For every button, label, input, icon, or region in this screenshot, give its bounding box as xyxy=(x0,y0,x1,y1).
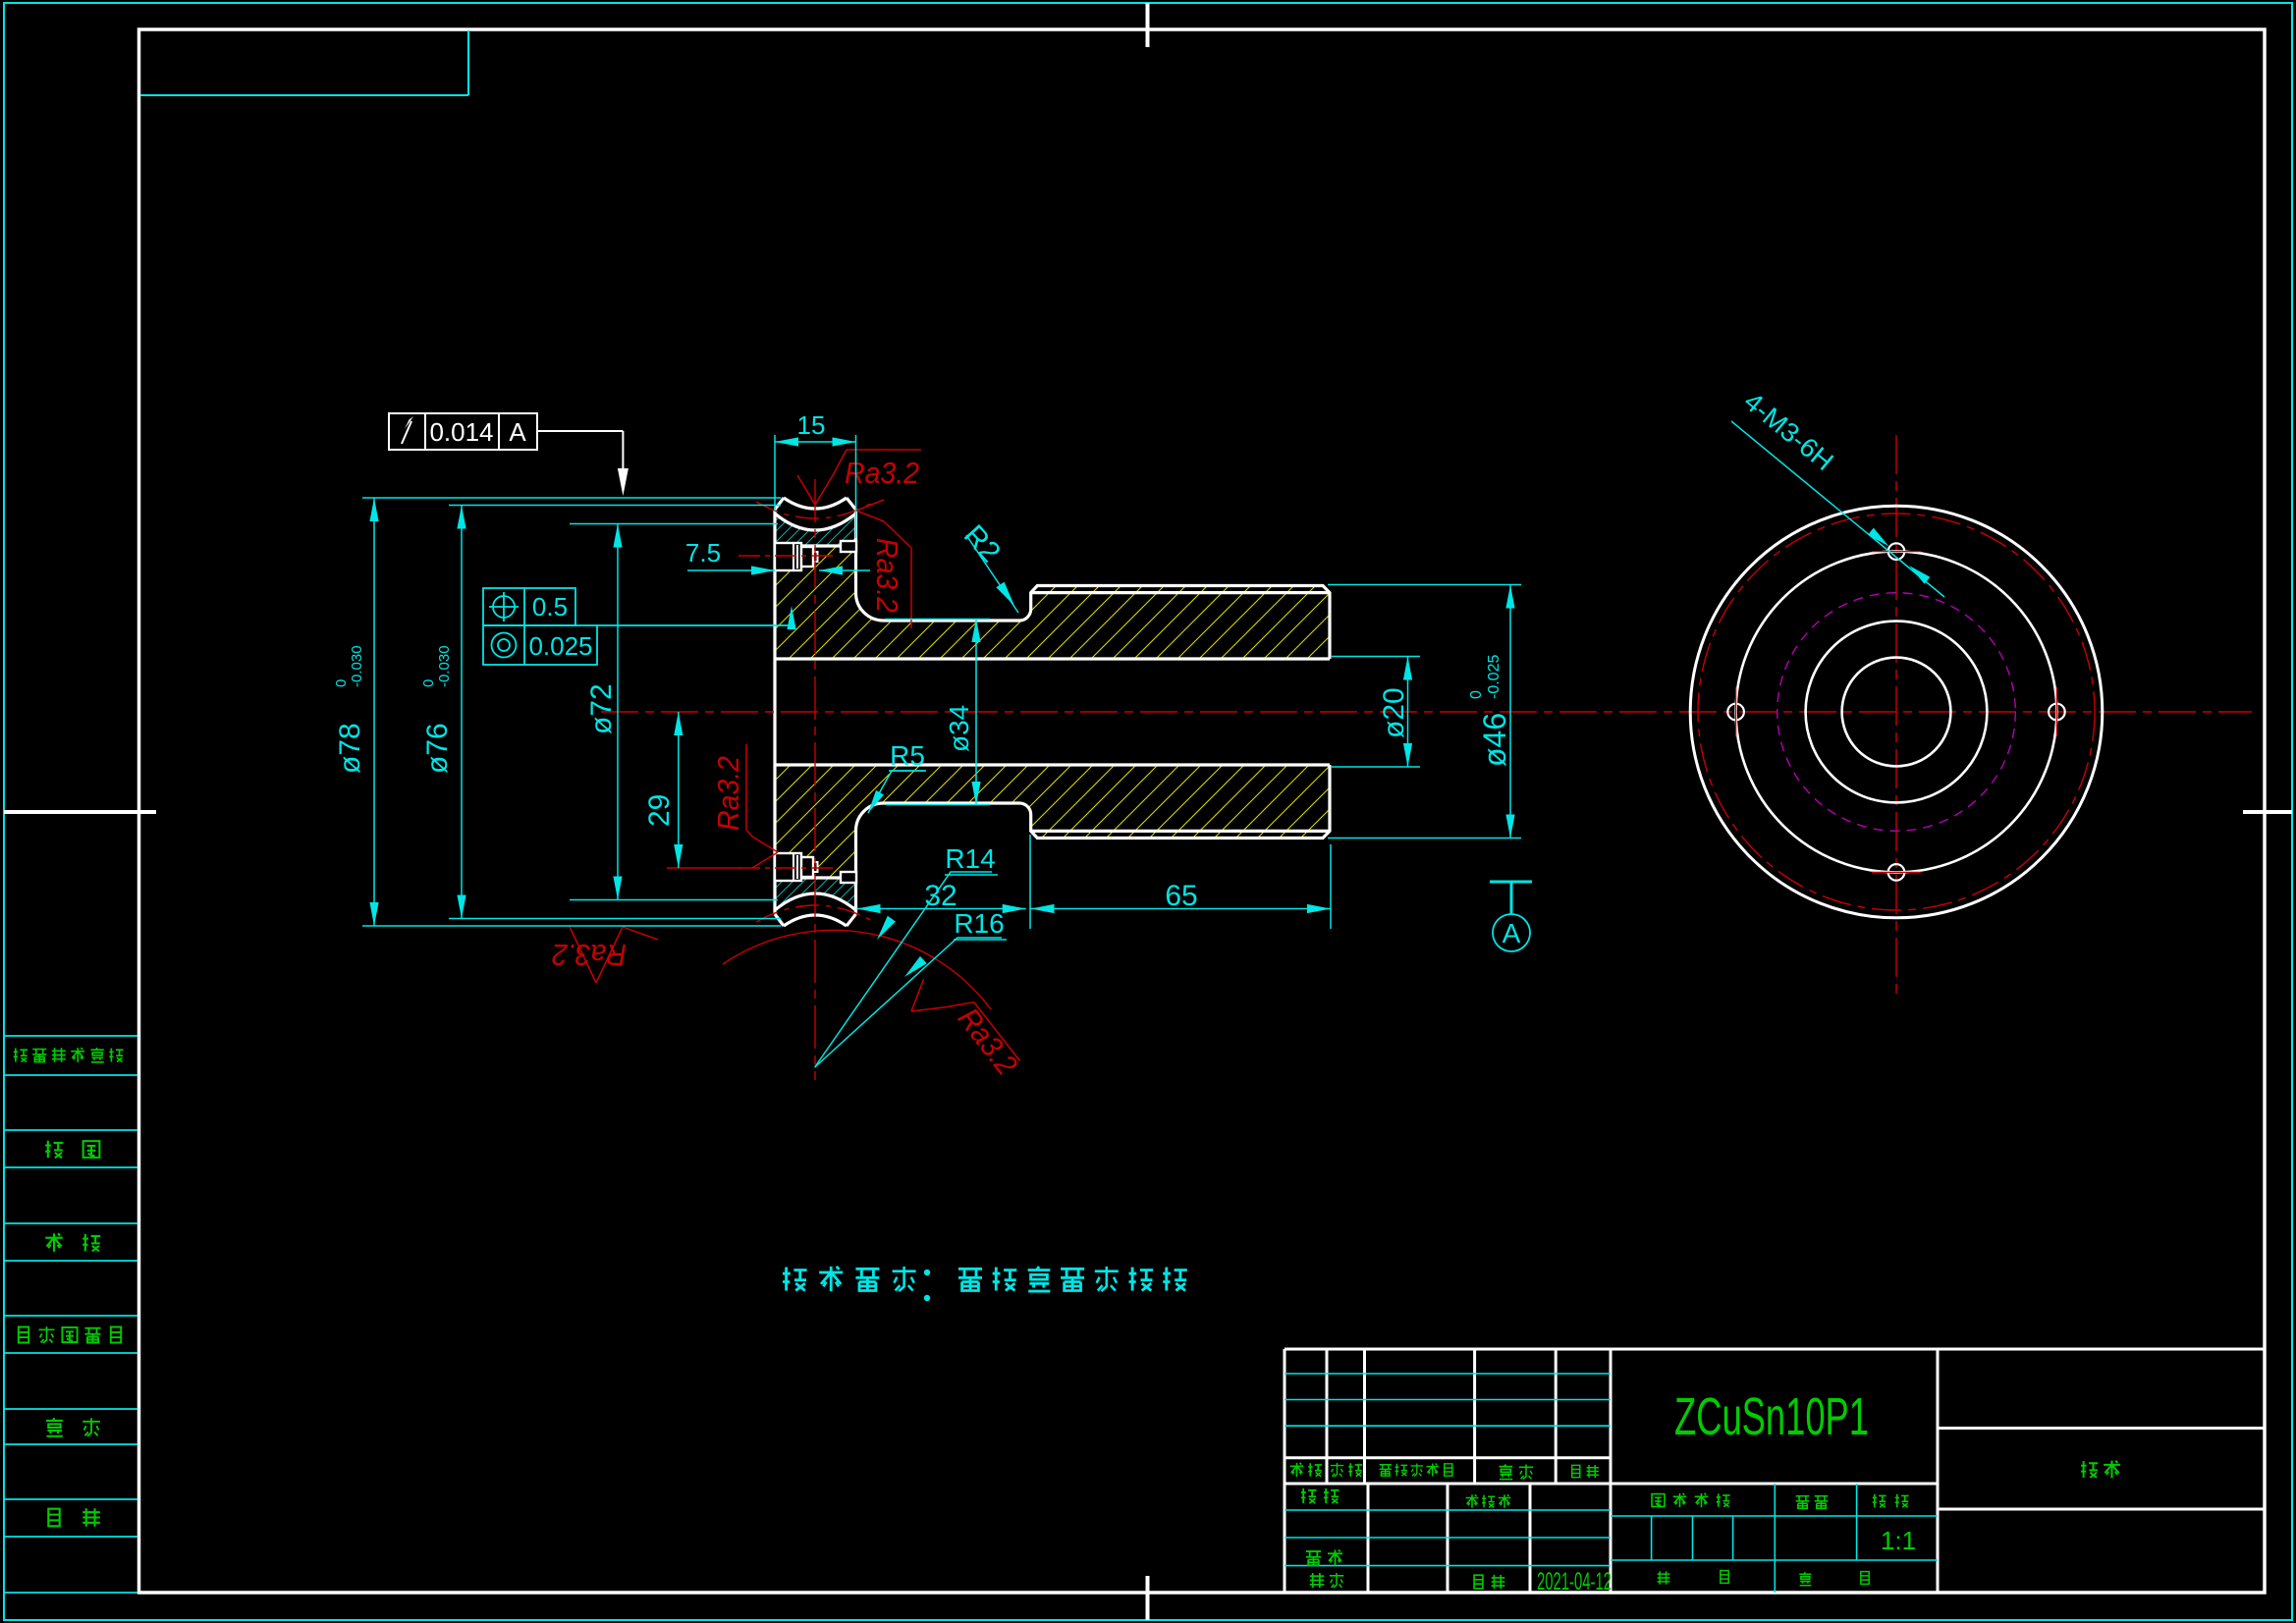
svg-text:Ra3.2: Ra3.2 xyxy=(552,938,627,972)
svg-text:ø46: ø46 xyxy=(1477,713,1512,767)
svg-text:Ra3.2: Ra3.2 xyxy=(870,538,904,613)
svg-text:-0.025: -0.025 xyxy=(1486,655,1503,699)
svg-text:ø76: ø76 xyxy=(421,723,454,774)
svg-text:15: 15 xyxy=(797,410,826,440)
svg-text:ø78: ø78 xyxy=(334,723,366,774)
svg-text:0: 0 xyxy=(333,679,350,687)
svg-text:R14: R14 xyxy=(945,843,995,874)
svg-text:R16: R16 xyxy=(954,908,1004,939)
svg-text:ø34: ø34 xyxy=(944,705,974,752)
svg-text:0: 0 xyxy=(420,679,437,687)
svg-text:0.025: 0.025 xyxy=(528,631,592,661)
svg-text:0.014: 0.014 xyxy=(429,417,493,447)
svg-text:A: A xyxy=(1503,918,1521,948)
svg-text:-0.030: -0.030 xyxy=(436,645,453,687)
svg-text:2021-04-12: 2021-04-12 xyxy=(1537,1568,1612,1596)
svg-text:0: 0 xyxy=(1468,690,1485,699)
svg-text:ø72: ø72 xyxy=(585,683,618,734)
svg-text:32: 32 xyxy=(924,880,957,912)
svg-text:A: A xyxy=(509,417,526,447)
svg-text:Ra3.2: Ra3.2 xyxy=(711,756,745,831)
svg-text:0.5: 0.5 xyxy=(532,592,568,622)
svg-text:R5: R5 xyxy=(890,740,925,771)
svg-text:65: 65 xyxy=(1165,880,1197,912)
svg-text:-0.030: -0.030 xyxy=(349,645,365,687)
svg-text:1:1: 1:1 xyxy=(1881,1526,1916,1555)
svg-text:29: 29 xyxy=(643,794,676,827)
svg-text:7.5: 7.5 xyxy=(685,538,721,568)
svg-text:ø20: ø20 xyxy=(1378,687,1410,738)
svg-text:ZCuSn10P1: ZCuSn10P1 xyxy=(1674,1387,1869,1446)
